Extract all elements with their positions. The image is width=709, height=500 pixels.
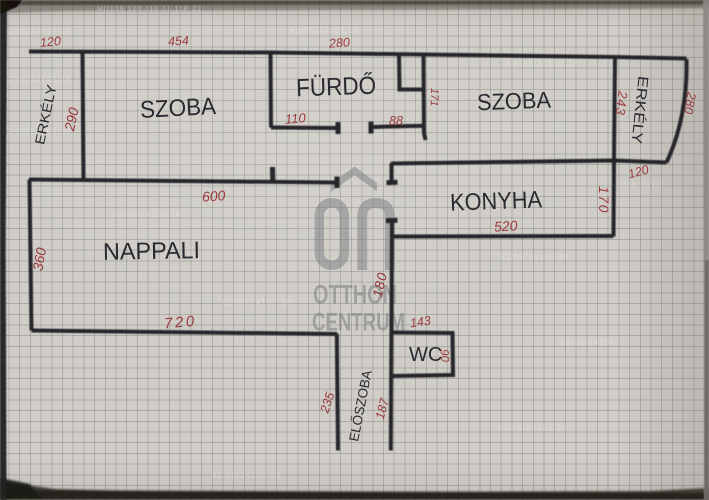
svg-text:KONYHA: KONYHA [450,186,543,216]
svg-text:ERKÉLY: ERKÉLY [32,83,59,146]
svg-text:600: 600 [201,187,226,205]
svg-text:62/06/24105: 62/06/24105 [560,338,616,347]
svg-text:120: 120 [627,162,651,181]
svg-text:62/06/24105:38: 62/06/24105:38 [500,253,570,262]
svg-text:62/06/24105:38: 62/06/24105:38 [498,423,568,432]
svg-text:wm.05/24105:38: wm.05/24105:38 [504,59,578,68]
svg-text:110: 110 [284,110,306,126]
svg-text:454: 454 [168,33,190,48]
svg-text:WC: WC [409,344,442,366]
svg-text:42/n6/24105:38: 42/n6/24105:38 [2,75,72,84]
svg-text:360: 360 [29,246,49,272]
svg-text:90: 90 [438,349,451,363]
svg-text:SZOBA: SZOBA [139,93,216,124]
svg-text:120: 120 [39,34,61,50]
svg-text:MD109 120 110 11 11P 22: MD109 120 110 11 11P 22 [97,6,202,13]
svg-text:290: 290 [61,106,82,133]
svg-text:143: 143 [409,314,432,331]
svg-text:243: 243 [613,89,631,116]
svg-text:ap/05/24105:38: ap/05/24105:38 [290,26,360,35]
svg-text:ELŐSZOBA: ELŐSZOBA [346,369,374,443]
svg-text:235: 235 [317,391,337,416]
svg-text:720: 720 [163,313,197,333]
svg-text:170: 170 [596,186,612,214]
svg-text:520: 520 [494,217,518,234]
svg-text:FÜRDŐ: FÜRDŐ [296,71,377,103]
svg-text:NAPPALI: NAPPALI [103,237,200,266]
svg-text:62/06/24105:38: 62/06/24105:38 [2,27,72,36]
svg-text:88: 88 [389,114,403,128]
svg-text:171: 171 [428,88,441,107]
svg-text:SZOBA: SZOBA [477,87,552,116]
svg-text:280: 280 [328,35,351,50]
svg-text:62/06/2410: 62/06/2410 [612,181,662,190]
svg-text:ERKÉLY: ERKÉLY [627,75,651,145]
svg-text:62/06/24105:38: 62/06/24105:38 [212,471,282,480]
svg-text:po/06/24105:38: po/06/24105:38 [112,210,182,219]
svg-text:62/06/24105:38: 62/06/24105:38 [222,298,292,307]
